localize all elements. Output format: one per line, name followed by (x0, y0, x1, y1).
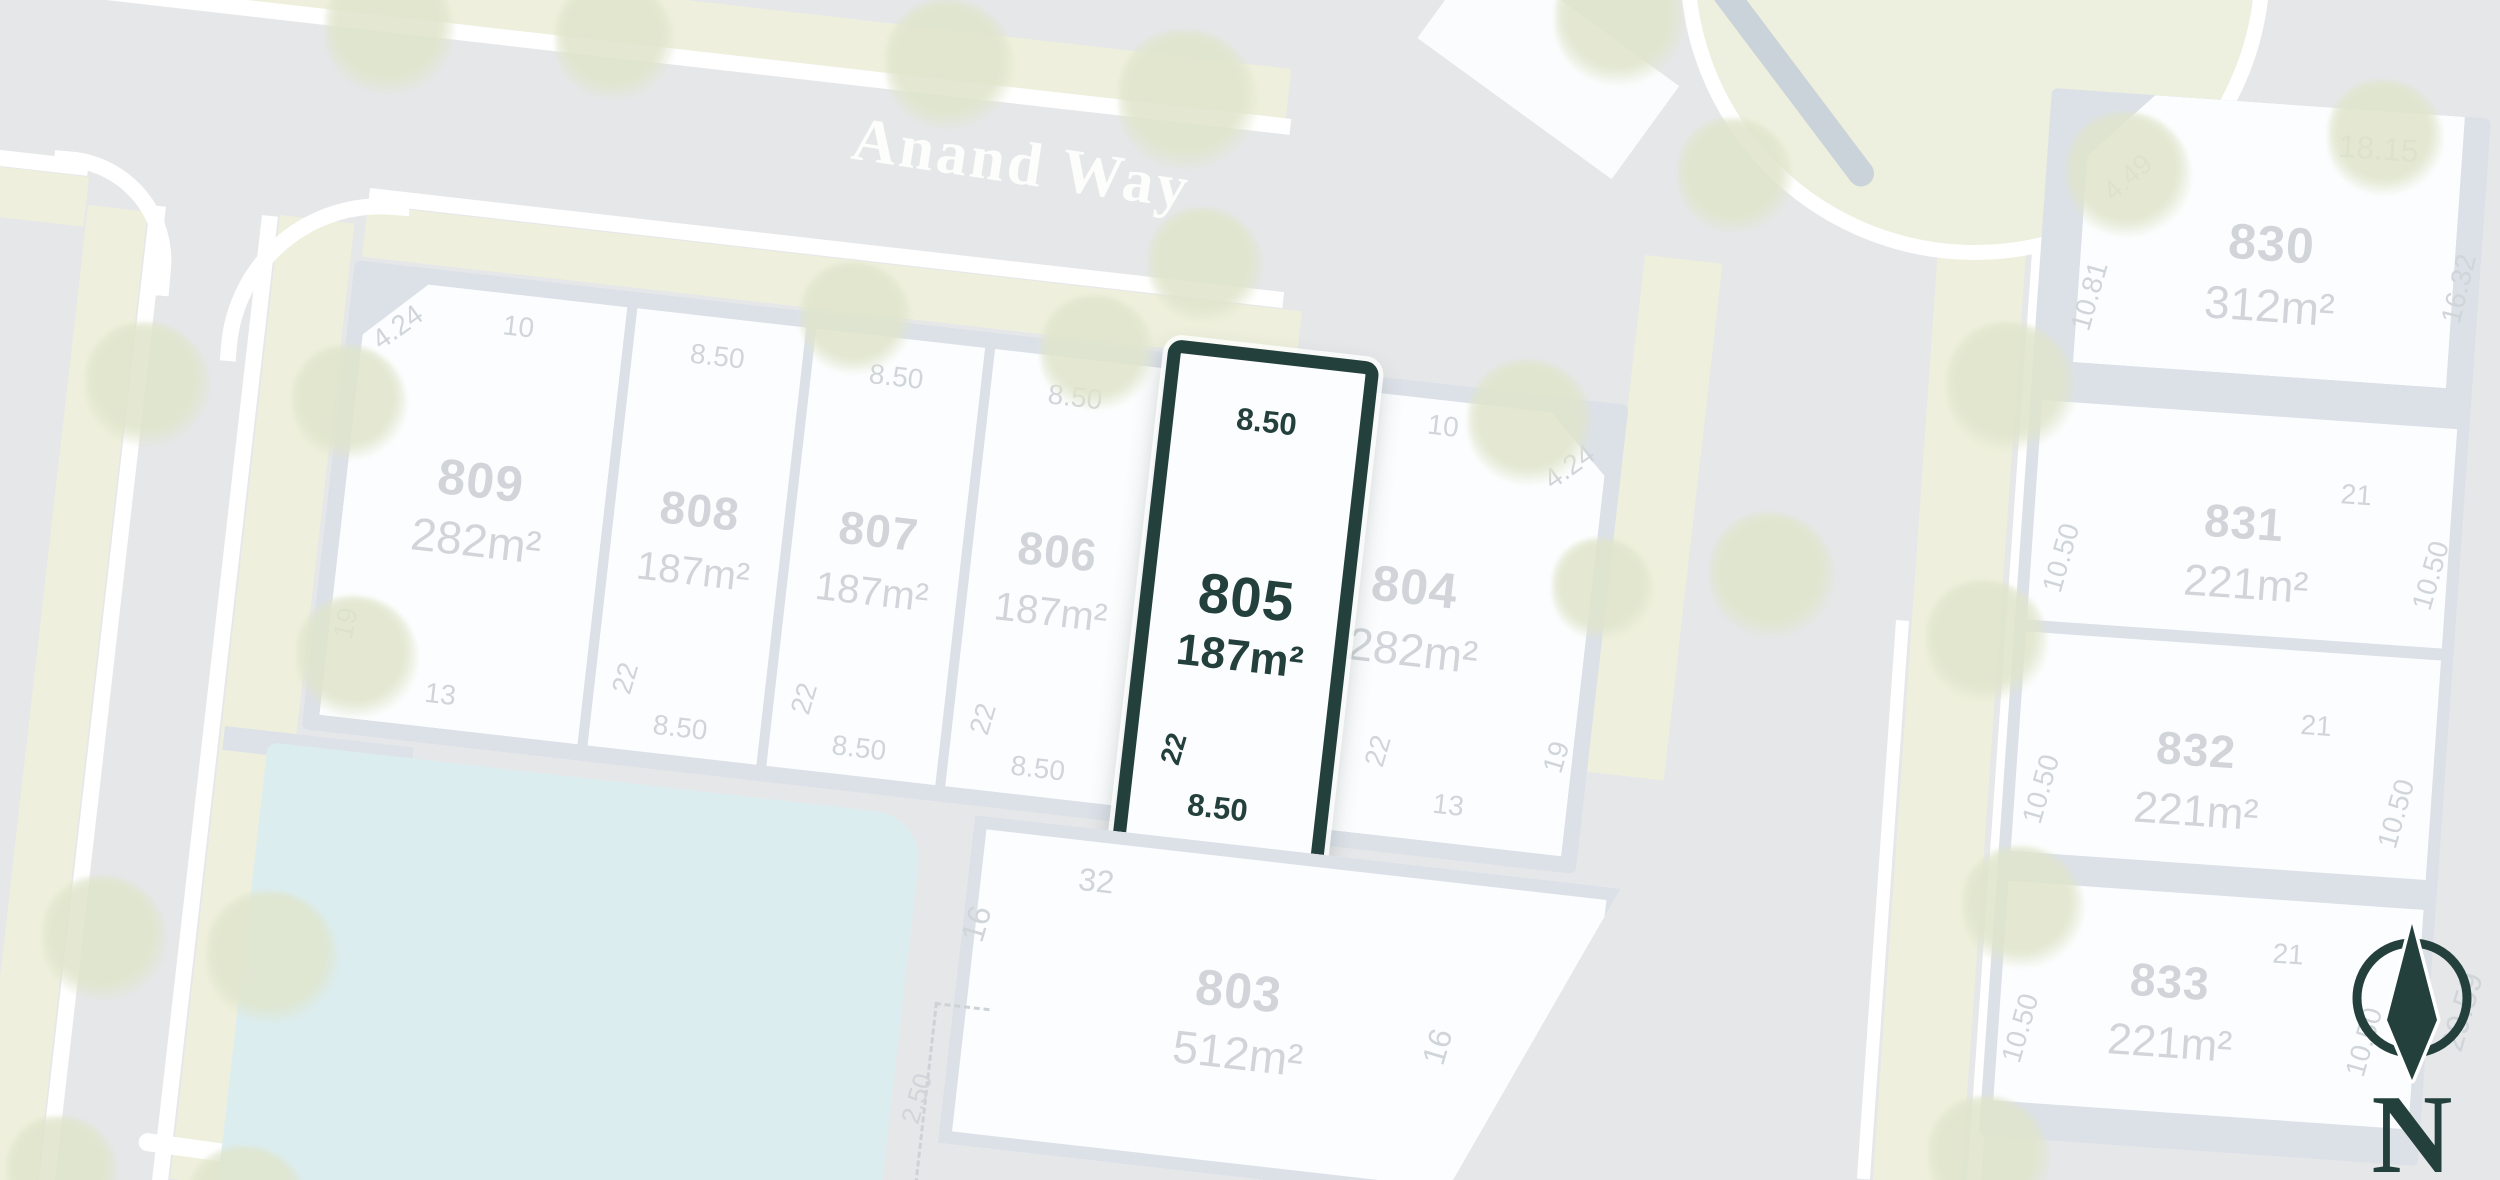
lot-number: 805 (1195, 559, 1298, 634)
tree (325, 0, 455, 95)
lot-number: 809 (435, 447, 527, 514)
north-compass: N (2342, 920, 2482, 1180)
tree (1926, 580, 2048, 702)
compass-icon: N (2342, 920, 2482, 1180)
lot-number: 833 (2128, 952, 2211, 1011)
lot-number: 807 (836, 500, 921, 563)
dim-label: 8.50 (830, 729, 888, 767)
tree (296, 596, 418, 718)
dim-label: 8.50 (1234, 401, 1298, 444)
dim-label: 13 (423, 677, 458, 712)
tree (1678, 118, 1793, 233)
tree (800, 262, 912, 374)
tree (1148, 208, 1263, 323)
tree (1710, 513, 1835, 638)
dim-label: 32 (1077, 861, 1117, 902)
lot-number: 832 (2155, 720, 2238, 779)
lot-803-block: 32 16 803 512m² 16 (938, 815, 1621, 1180)
tree (2328, 80, 2443, 195)
lot-area: 221m² (2132, 783, 2260, 842)
dim-label: 21 (2271, 938, 2304, 972)
dim-label: 2.50 (895, 1070, 939, 1127)
tree (1118, 30, 1258, 170)
dim-label: 8.50 (651, 709, 709, 747)
lot-number: 830 (2227, 212, 2317, 276)
dim-label: 22 (1154, 729, 1194, 768)
lot-number: 831 (2203, 493, 2286, 552)
tree (42, 876, 167, 1001)
tree (555, 0, 675, 100)
lot-number: 804 (1369, 553, 1461, 620)
lot-number: 808 (657, 479, 742, 542)
dim-label: 8.50 (1009, 750, 1067, 788)
lot-number: 806 (1015, 520, 1100, 583)
tree (885, 0, 1015, 130)
dim-label: 8.50 (1185, 787, 1249, 830)
lot-area: 312m² (2202, 274, 2336, 337)
dim-label: 21 (2340, 478, 2373, 512)
lot-area: 221m² (2182, 555, 2310, 614)
tree (1040, 295, 1155, 410)
lot-area: 221m² (2106, 1014, 2234, 1073)
dim-label: 8.50 (689, 338, 747, 376)
dim-label: 21 (2299, 709, 2332, 743)
kerb-corner-sw (43, 150, 180, 296)
subdivision-map: 4.24 10 19 13 809 282m² 8.50 808 187m² 2… (0, 0, 2500, 1180)
tree (1946, 322, 2076, 452)
dim-label: 10 (1426, 409, 1461, 444)
tree (2066, 112, 2191, 237)
tree (85, 322, 210, 447)
dim-label: 10 (501, 309, 536, 344)
tree (292, 345, 407, 460)
dim-label: 13 (1431, 788, 1466, 823)
lot-number: 803 (1193, 957, 1285, 1024)
tree (1552, 538, 1654, 640)
compass-north-label: N (2372, 1073, 2453, 1180)
tree (206, 891, 338, 1023)
tree (1468, 360, 1593, 485)
tree (1962, 846, 2084, 968)
easement-line: 2.50 (914, 1002, 989, 1180)
